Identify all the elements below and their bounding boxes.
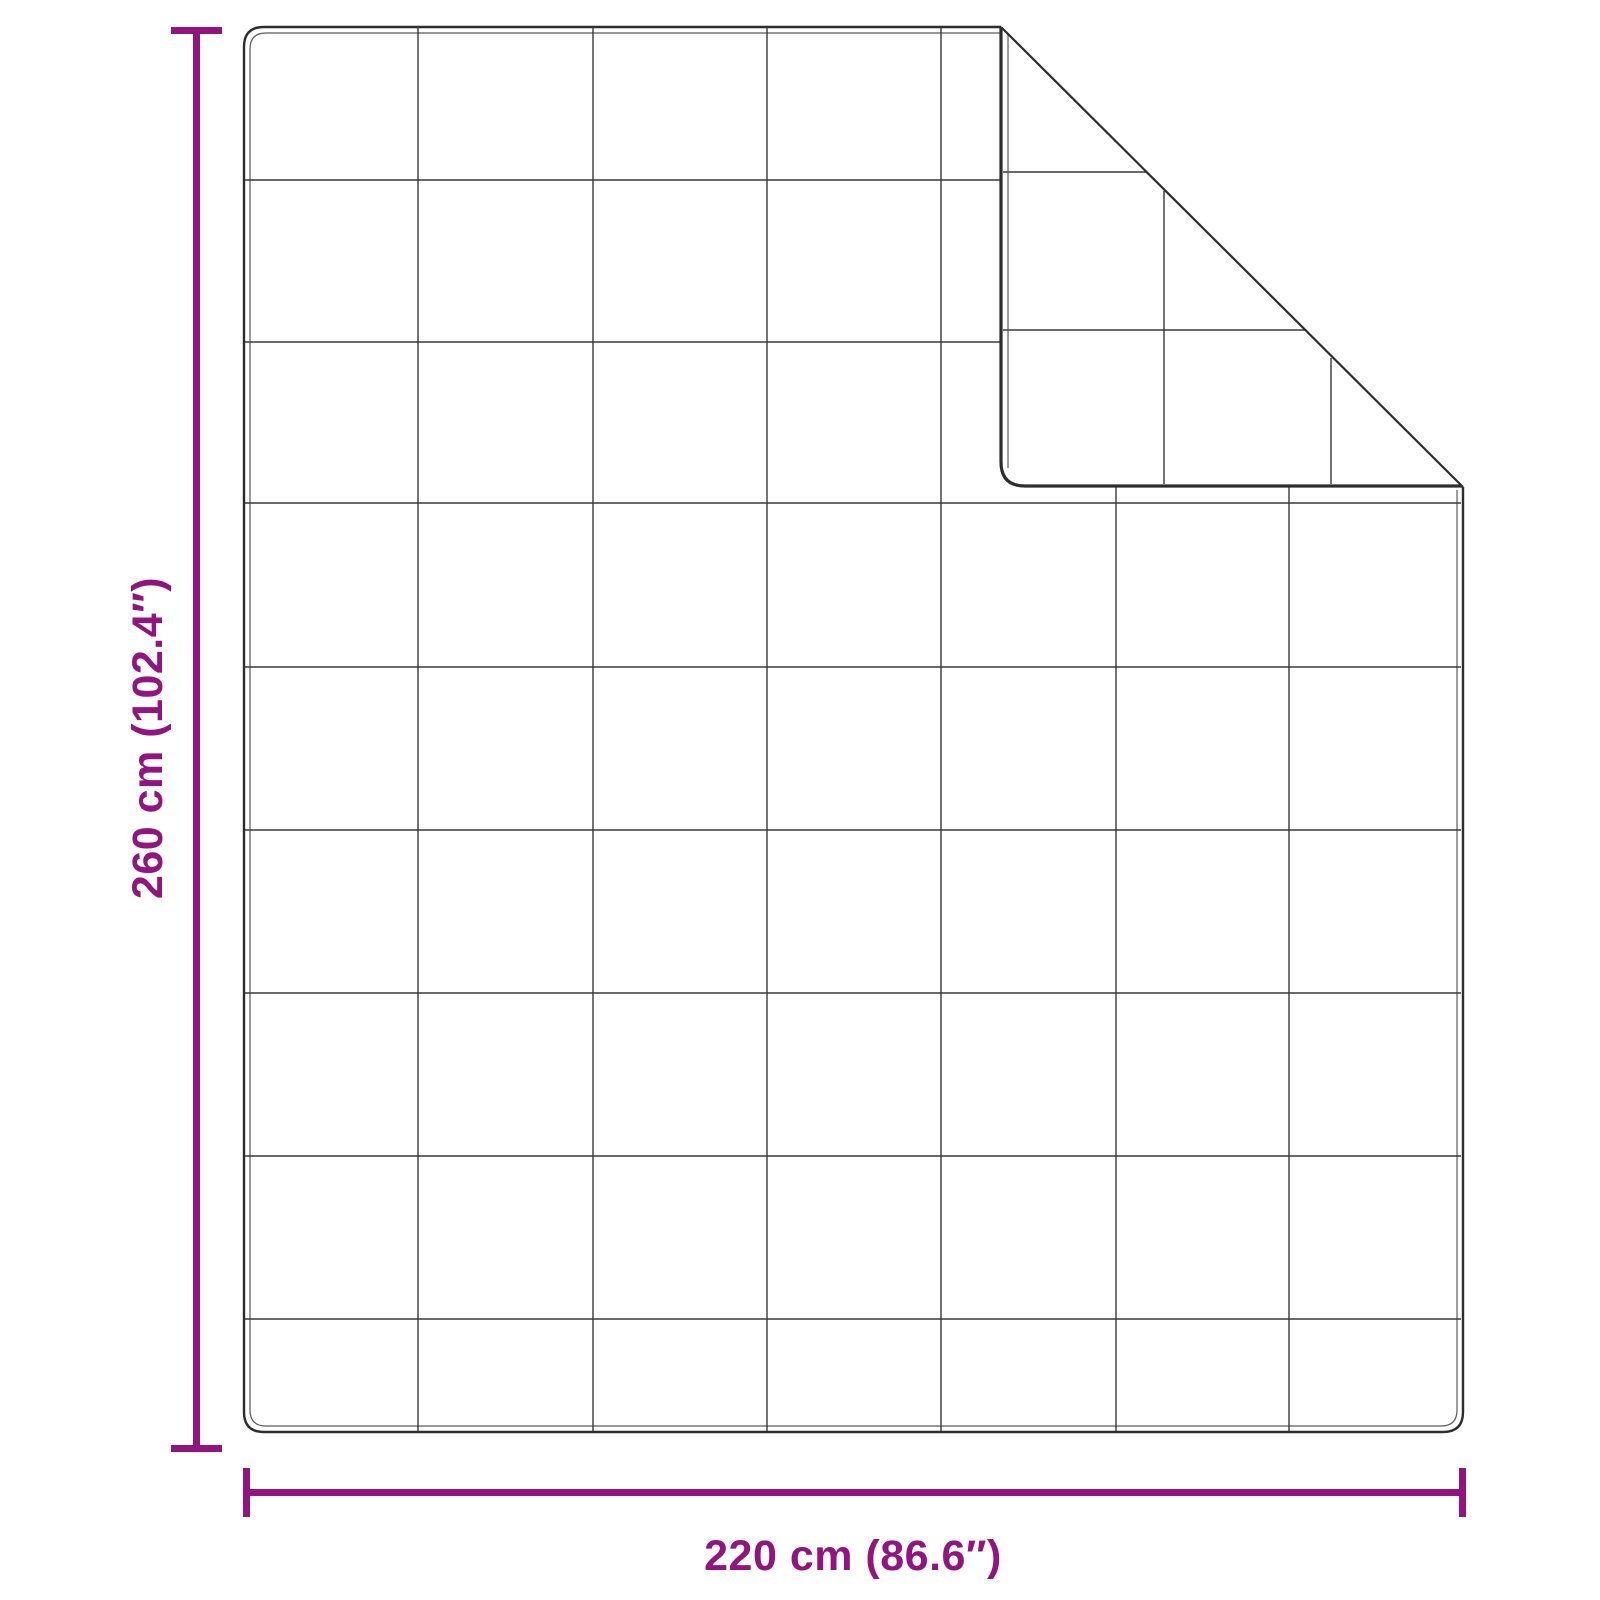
width-dimension-cap-right	[1459, 1468, 1466, 1517]
height-dimension-line	[193, 30, 200, 1449]
width-dimension-label: 220 cm (86.6″)	[704, 1532, 1002, 1580]
page: 260 cm (102.4″) 220 cm (86.6″)	[0, 0, 1600, 1600]
height-dimension-cap-bottom	[171, 1445, 222, 1452]
blanket-diagram-svg: 260 cm (102.4″) 220 cm (86.6″)	[0, 0, 1600, 1600]
width-dimension-cap-left	[243, 1468, 250, 1517]
height-dimension-label: 260 cm (102.4″)	[124, 577, 172, 899]
width-dimension-line	[246, 1489, 1464, 1496]
height-dimension-cap-top	[171, 27, 222, 34]
